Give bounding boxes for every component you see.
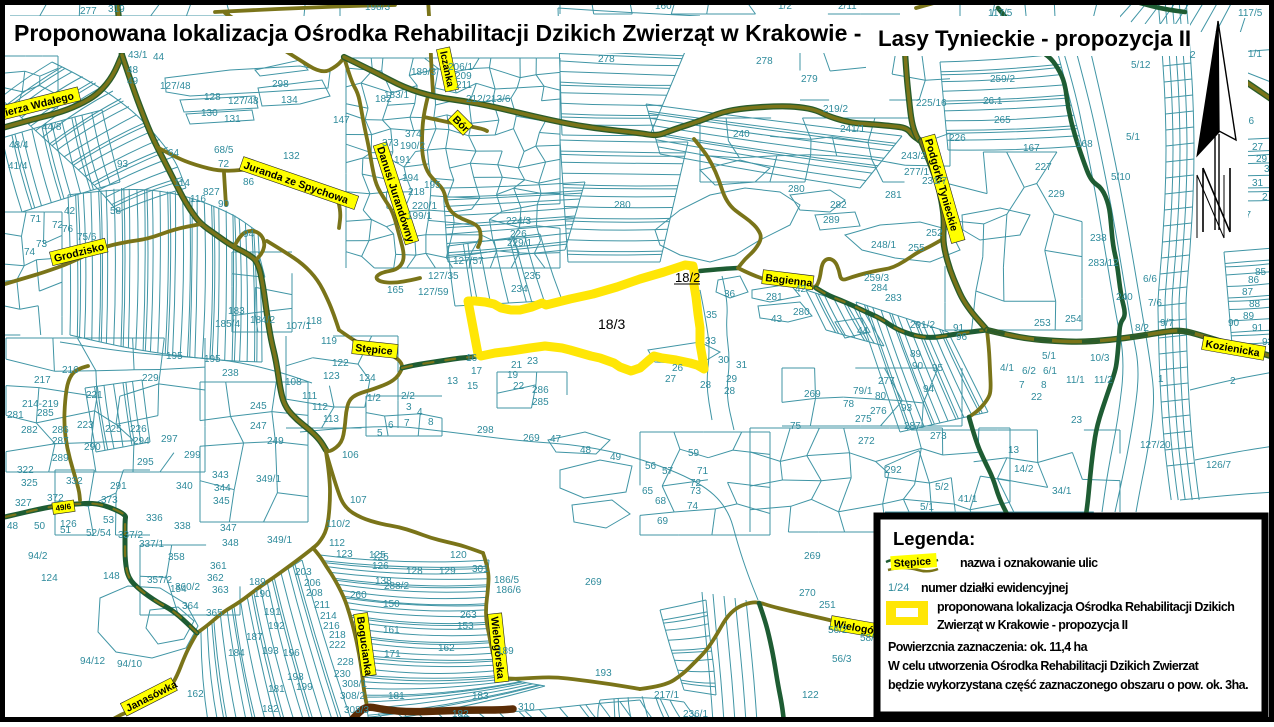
svg-text:5/1: 5/1: [1126, 132, 1140, 143]
svg-text:361: 361: [210, 561, 227, 572]
svg-text:226: 226: [949, 133, 966, 144]
svg-text:122: 122: [332, 358, 349, 369]
svg-text:181: 181: [388, 691, 405, 702]
svg-text:357/2: 357/2: [147, 575, 172, 586]
svg-text:171: 171: [384, 649, 401, 660]
svg-text:269: 269: [804, 551, 821, 562]
svg-text:114: 114: [174, 178, 190, 189]
svg-text:91: 91: [1252, 323, 1264, 334]
svg-text:327: 327: [15, 498, 32, 509]
svg-text:234: 234: [511, 284, 528, 295]
svg-text:260: 260: [350, 590, 367, 601]
svg-text:2: 2: [1230, 376, 1236, 387]
svg-text:93: 93: [901, 403, 913, 414]
svg-text:7: 7: [1019, 380, 1025, 391]
svg-text:74: 74: [687, 501, 699, 512]
svg-text:349/1: 349/1: [256, 474, 281, 485]
svg-text:29: 29: [726, 374, 738, 385]
svg-text:nazwa i oznakowanie ulic: nazwa i oznakowanie ulic: [960, 556, 1098, 570]
svg-text:216: 216: [62, 365, 79, 376]
svg-text:53: 53: [103, 515, 115, 526]
svg-text:373: 373: [101, 495, 118, 506]
svg-text:148: 148: [103, 571, 120, 582]
svg-text:194: 194: [402, 173, 419, 184]
svg-text:191: 191: [394, 155, 411, 166]
svg-text:283: 283: [885, 293, 902, 304]
svg-text:1/1: 1/1: [1248, 49, 1262, 60]
svg-text:363: 363: [212, 585, 229, 596]
svg-text:286: 286: [52, 425, 69, 436]
svg-text:94: 94: [243, 229, 255, 240]
svg-text:228: 228: [337, 657, 354, 668]
svg-text:będzie wykorzystana część zazn: będzie wykorzystana część zaznaczonego o…: [888, 678, 1248, 692]
svg-text:235: 235: [524, 271, 541, 282]
svg-text:241/1: 241/1: [840, 124, 865, 135]
svg-text:6/6: 6/6: [1143, 274, 1157, 285]
svg-text:199/1: 199/1: [407, 211, 432, 222]
svg-text:15: 15: [467, 381, 479, 392]
svg-text:127/48: 127/48: [160, 81, 191, 92]
svg-text:286: 286: [532, 385, 549, 396]
svg-text:8/2: 8/2: [1135, 323, 1149, 334]
svg-text:5/2: 5/2: [935, 482, 949, 493]
svg-text:30: 30: [718, 355, 730, 366]
svg-text:112: 112: [329, 538, 345, 549]
svg-text:221: 221: [86, 390, 103, 401]
svg-text:132: 132: [283, 151, 300, 162]
svg-text:308/1: 308/1: [342, 679, 367, 690]
svg-text:26: 26: [672, 363, 684, 374]
svg-text:222: 222: [329, 640, 346, 651]
svg-text:162: 162: [187, 689, 204, 700]
svg-text:183/1: 183/1: [384, 90, 409, 101]
svg-text:325: 325: [21, 478, 38, 489]
svg-text:76: 76: [62, 224, 74, 235]
svg-text:247: 247: [250, 421, 267, 432]
svg-text:111: 111: [302, 391, 318, 402]
svg-text:22: 22: [1031, 392, 1043, 403]
svg-text:13: 13: [1008, 445, 1020, 456]
svg-text:127/20: 127/20: [1140, 440, 1171, 451]
svg-text:184: 184: [228, 648, 245, 659]
svg-text:285: 285: [532, 397, 549, 408]
svg-text:89: 89: [910, 349, 922, 360]
svg-text:211: 211: [314, 600, 330, 611]
svg-text:189: 189: [497, 646, 514, 657]
svg-text:W celu utworzenia Ośrodka Reha: W celu utworzenia Ośrodka Rehabilitacji …: [888, 659, 1200, 673]
svg-text:36: 36: [724, 289, 736, 300]
svg-text:288/2: 288/2: [384, 581, 409, 592]
svg-text:249: 249: [267, 436, 284, 447]
svg-text:161: 161: [383, 625, 400, 636]
svg-text:108: 108: [285, 377, 302, 388]
svg-text:240: 240: [1116, 292, 1133, 303]
svg-text:349/1: 349/1: [267, 535, 292, 546]
svg-text:5/1: 5/1: [1042, 351, 1056, 362]
svg-text:56: 56: [645, 461, 657, 472]
svg-text:123: 123: [323, 371, 340, 382]
svg-text:9/7: 9/7: [1160, 318, 1174, 329]
svg-text:208: 208: [306, 588, 323, 599]
svg-text:33: 33: [705, 336, 717, 347]
svg-text:27: 27: [1252, 142, 1264, 153]
svg-text:64: 64: [168, 148, 180, 159]
svg-text:128: 128: [204, 92, 221, 103]
svg-text:68/5: 68/5: [214, 145, 234, 156]
svg-text:301: 301: [472, 564, 489, 575]
svg-text:110/2: 110/2: [326, 519, 351, 530]
svg-text:294: 294: [133, 436, 150, 447]
svg-text:129: 129: [439, 566, 456, 577]
svg-text:277: 277: [878, 376, 895, 387]
svg-text:229/1: 229/1: [507, 238, 532, 249]
svg-text:269: 269: [804, 389, 821, 400]
svg-text:23: 23: [527, 356, 539, 367]
svg-text:35: 35: [706, 310, 718, 321]
svg-text:365: 365: [206, 608, 223, 619]
svg-text:7/6: 7/6: [1148, 298, 1162, 309]
svg-text:281: 281: [7, 410, 24, 421]
svg-text:358: 358: [168, 552, 185, 563]
svg-text:150: 150: [383, 599, 400, 610]
svg-text:186/6: 186/6: [496, 585, 521, 596]
svg-text:190/2: 190/2: [400, 141, 425, 152]
svg-text:263: 263: [460, 610, 477, 621]
svg-text:270: 270: [799, 588, 816, 599]
svg-text:195: 195: [204, 354, 221, 365]
svg-text:308/3: 308/3: [344, 705, 369, 716]
svg-text:147: 147: [333, 115, 350, 126]
svg-text:34/1: 34/1: [1052, 486, 1072, 497]
svg-text:94/10: 94/10: [117, 659, 142, 670]
svg-text:56/2: 56/2: [828, 625, 848, 636]
svg-text:238: 238: [222, 368, 239, 379]
svg-text:117/5: 117/5: [1238, 8, 1263, 19]
svg-text:86: 86: [243, 177, 255, 188]
svg-text:95: 95: [932, 363, 944, 374]
svg-text:218: 218: [408, 187, 425, 198]
svg-text:48: 48: [580, 445, 592, 456]
svg-text:4: 4: [417, 407, 423, 418]
svg-text:11/2: 11/2: [1094, 375, 1113, 386]
svg-text:1/2: 1/2: [367, 393, 381, 404]
svg-text:227: 227: [1035, 162, 1052, 173]
svg-text:278: 278: [756, 56, 773, 67]
svg-text:47: 47: [550, 434, 562, 445]
svg-text:96: 96: [956, 332, 968, 343]
svg-text:41/4: 41/4: [8, 161, 28, 172]
svg-text:Powierzcnia zaznaczenia: ok. 1: Powierzcnia zaznaczenia: ok. 11,4 ha: [888, 640, 1089, 654]
svg-text:73: 73: [36, 239, 48, 250]
svg-text:289: 289: [52, 453, 69, 464]
svg-text:90: 90: [912, 361, 924, 372]
svg-text:74: 74: [24, 247, 36, 258]
svg-text:126/7: 126/7: [1206, 460, 1231, 471]
svg-text:185/4: 185/4: [215, 319, 240, 330]
svg-text:240: 240: [733, 129, 750, 140]
svg-text:319: 319: [108, 4, 125, 15]
svg-text:165: 165: [387, 285, 404, 296]
svg-text:31: 31: [1252, 178, 1264, 189]
svg-text:280: 280: [793, 307, 810, 318]
svg-text:88: 88: [1249, 299, 1261, 310]
svg-text:18/2: 18/2: [675, 270, 700, 285]
svg-text:41/1: 41/1: [958, 494, 978, 505]
svg-text:348: 348: [222, 538, 239, 549]
svg-text:372: 372: [47, 493, 64, 504]
svg-text:50: 50: [34, 521, 46, 532]
svg-text:226: 226: [130, 424, 147, 435]
svg-text:7: 7: [404, 418, 410, 429]
svg-text:122: 122: [802, 690, 819, 701]
svg-text:279: 279: [801, 74, 818, 85]
svg-text:276: 276: [870, 406, 887, 417]
svg-text:273: 273: [930, 431, 947, 442]
svg-text:310: 310: [518, 702, 535, 713]
svg-text:191: 191: [264, 607, 281, 618]
svg-text:72: 72: [52, 220, 64, 231]
svg-text:154: 154: [170, 584, 187, 595]
svg-text:57: 57: [662, 466, 674, 477]
svg-text:79/1: 79/1: [853, 386, 873, 397]
svg-text:26.1: 26.1: [983, 96, 1003, 107]
svg-text:287: 287: [52, 436, 69, 447]
svg-text:272: 272: [858, 436, 875, 447]
svg-text:75: 75: [790, 421, 802, 432]
svg-text:numer działki ewidencyjnej: numer działki ewidencyjnej: [921, 581, 1068, 595]
svg-text:299: 299: [184, 450, 201, 461]
svg-text:Legenda:: Legenda:: [893, 528, 975, 549]
svg-text:58: 58: [110, 206, 122, 217]
svg-text:6/1: 6/1: [1043, 366, 1057, 377]
svg-text:308/2: 308/2: [340, 691, 365, 702]
svg-text:94: 94: [923, 384, 935, 395]
svg-text:3: 3: [406, 402, 412, 413]
svg-text:8: 8: [1041, 380, 1047, 391]
svg-text:112: 112: [312, 402, 328, 413]
svg-text:124: 124: [41, 573, 58, 584]
svg-text:332: 332: [66, 476, 83, 487]
svg-text:69: 69: [657, 516, 669, 527]
svg-text:127/59: 127/59: [418, 287, 449, 298]
svg-text:265: 265: [994, 115, 1011, 126]
svg-text:338: 338: [174, 521, 191, 532]
svg-text:130: 130: [201, 108, 218, 119]
svg-text:281: 281: [766, 292, 783, 303]
svg-text:254: 254: [1065, 314, 1082, 325]
svg-text:6/2: 6/2: [1022, 366, 1036, 377]
svg-text:126: 126: [372, 561, 389, 572]
svg-text:362: 362: [207, 573, 224, 584]
svg-text:106: 106: [342, 450, 359, 461]
svg-text:71: 71: [30, 214, 42, 225]
svg-text:364: 364: [182, 601, 199, 612]
svg-text:75/6: 75/6: [77, 232, 97, 243]
svg-text:292: 292: [885, 465, 902, 476]
svg-text:282: 282: [830, 200, 847, 211]
svg-text:269: 269: [585, 577, 602, 588]
svg-text:90: 90: [1228, 318, 1240, 329]
svg-text:184/2: 184/2: [250, 315, 275, 326]
svg-text:proponowana lokalizacja Ośrodk: proponowana lokalizacja Ośrodka Rehabili…: [937, 600, 1234, 614]
svg-text:337/1: 337/1: [139, 539, 164, 550]
svg-text:153: 153: [457, 621, 474, 632]
svg-text:17: 17: [471, 366, 483, 377]
svg-text:217: 217: [34, 375, 51, 386]
svg-text:43: 43: [771, 314, 783, 325]
svg-text:68: 68: [655, 496, 667, 507]
svg-text:269: 269: [523, 433, 540, 444]
svg-text:42: 42: [64, 206, 76, 217]
svg-text:248/1: 248/1: [871, 240, 896, 251]
svg-text:373: 373: [382, 138, 399, 149]
svg-text:128: 128: [406, 566, 423, 577]
svg-text:134: 134: [281, 95, 298, 106]
svg-text:2: 2: [1262, 192, 1268, 203]
svg-text:344: 344: [214, 483, 231, 494]
svg-text:183: 183: [228, 306, 245, 317]
svg-text:10/3: 10/3: [1090, 353, 1110, 364]
svg-text:284: 284: [871, 283, 888, 294]
svg-text:168: 168: [1076, 139, 1093, 150]
svg-text:282: 282: [21, 425, 38, 436]
svg-text:189: 189: [249, 577, 266, 588]
svg-text:48/4: 48/4: [9, 140, 29, 151]
svg-text:44/8: 44/8: [42, 122, 62, 133]
svg-text:277: 277: [80, 6, 97, 17]
svg-text:31: 31: [736, 360, 748, 371]
svg-text:322: 322: [17, 465, 34, 476]
svg-text:23: 23: [1071, 415, 1083, 426]
svg-text:229: 229: [142, 373, 159, 384]
svg-text:285: 285: [37, 408, 54, 419]
svg-text:238: 238: [1090, 233, 1107, 244]
svg-text:27: 27: [665, 374, 677, 385]
svg-text:259/3: 259/3: [864, 273, 889, 284]
svg-text:49: 49: [610, 452, 622, 463]
svg-text:107: 107: [350, 495, 367, 506]
svg-text:223: 223: [77, 420, 94, 431]
svg-text:43/1: 43/1: [128, 50, 148, 61]
svg-text:48: 48: [127, 65, 139, 76]
svg-text:73: 73: [690, 486, 702, 497]
svg-text:224/3: 224/3: [506, 216, 531, 227]
svg-text:2: 2: [1190, 50, 1196, 61]
svg-text:93: 93: [117, 159, 129, 170]
svg-text:5/12: 5/12: [1131, 60, 1151, 71]
svg-text:252: 252: [926, 228, 943, 239]
svg-text:113: 113: [323, 414, 339, 425]
svg-text:162: 162: [438, 643, 455, 654]
svg-text:78: 78: [843, 399, 855, 410]
svg-text:195: 195: [424, 180, 441, 191]
svg-text:72: 72: [218, 159, 230, 170]
svg-text:2/2: 2/2: [401, 391, 415, 402]
svg-text:281: 281: [885, 190, 902, 201]
svg-text:192: 192: [268, 621, 285, 632]
svg-text:199: 199: [296, 682, 313, 693]
svg-text:212/213/6: 212/213/6: [466, 94, 511, 105]
svg-text:127/35: 127/35: [428, 271, 459, 282]
svg-text:Proponowana lokalizacja Ośrodk: Proponowana lokalizacja Ośrodka Rehabili…: [14, 20, 861, 46]
svg-text:42: 42: [795, 284, 807, 295]
svg-text:80: 80: [875, 391, 887, 402]
svg-text:28: 28: [700, 380, 712, 391]
svg-text:291: 291: [110, 481, 127, 492]
svg-text:183: 183: [472, 691, 489, 702]
svg-text:Lasy Tynieckie - propozycja II: Lasy Tynieckie - propozycja II: [878, 26, 1191, 51]
svg-text:Zwierząt w Krakowie - propozyc: Zwierząt w Krakowie - propozycja II: [937, 618, 1128, 632]
svg-text:94/12: 94/12: [80, 656, 105, 667]
svg-text:4/1: 4/1: [1000, 363, 1014, 374]
svg-text:52/54: 52/54: [86, 528, 111, 539]
svg-text:280: 280: [788, 184, 805, 195]
svg-text:11/1: 11/1: [1066, 375, 1085, 386]
svg-text:167: 167: [1023, 143, 1040, 154]
svg-text:28: 28: [724, 386, 736, 397]
svg-text:89: 89: [1243, 311, 1255, 322]
svg-text:124: 124: [359, 373, 376, 384]
svg-text:336: 336: [146, 513, 163, 524]
svg-text:86: 86: [1248, 275, 1260, 286]
svg-text:127/57: 127/57: [453, 256, 484, 267]
svg-text:203: 203: [295, 567, 312, 578]
svg-text:219/2: 219/2: [823, 104, 848, 115]
svg-text:275: 275: [855, 414, 872, 425]
svg-text:347: 347: [220, 523, 237, 534]
svg-text:56/3: 56/3: [832, 654, 852, 665]
svg-text:22: 22: [513, 381, 525, 392]
svg-text:295: 295: [137, 457, 154, 468]
svg-text:48: 48: [7, 521, 19, 532]
svg-text:253: 253: [1034, 318, 1051, 329]
svg-text:374: 374: [405, 129, 422, 140]
svg-text:44: 44: [153, 52, 165, 63]
svg-text:243/2: 243/2: [901, 151, 926, 162]
svg-text:59: 59: [688, 448, 700, 459]
svg-text:1: 1: [1158, 374, 1164, 385]
svg-text:117/5: 117/5: [988, 8, 1013, 19]
svg-text:14/2: 14/2: [1014, 464, 1034, 475]
svg-text:126: 126: [60, 519, 77, 530]
svg-text:5/1: 5/1: [920, 502, 934, 513]
svg-text:127/48: 127/48: [228, 96, 259, 107]
svg-text:189/3: 189/3: [411, 67, 436, 78]
svg-text:290: 290: [84, 442, 101, 453]
svg-text:280: 280: [614, 200, 631, 211]
svg-text:116: 116: [190, 194, 206, 205]
svg-text:229: 229: [1048, 189, 1065, 200]
svg-text:217/1: 217/1: [654, 690, 679, 701]
svg-text:182: 182: [262, 704, 279, 715]
svg-text:195: 195: [166, 351, 183, 362]
svg-text:118: 118: [306, 316, 322, 327]
svg-text:231/7: 231/7: [922, 176, 947, 187]
svg-text:343: 343: [212, 470, 229, 481]
svg-text:340: 340: [176, 481, 193, 492]
svg-text:225: 225: [105, 424, 122, 435]
svg-text:187: 187: [246, 632, 263, 643]
svg-text:287: 287: [904, 421, 921, 432]
svg-text:193: 193: [595, 668, 612, 679]
svg-text:1/24: 1/24: [888, 582, 909, 594]
svg-text:251: 251: [819, 600, 836, 611]
svg-text:245: 245: [250, 401, 267, 412]
svg-text:297: 297: [161, 434, 178, 445]
svg-text:49: 49: [127, 76, 139, 87]
svg-text:298: 298: [272, 79, 289, 90]
svg-text:6: 6: [388, 420, 394, 431]
